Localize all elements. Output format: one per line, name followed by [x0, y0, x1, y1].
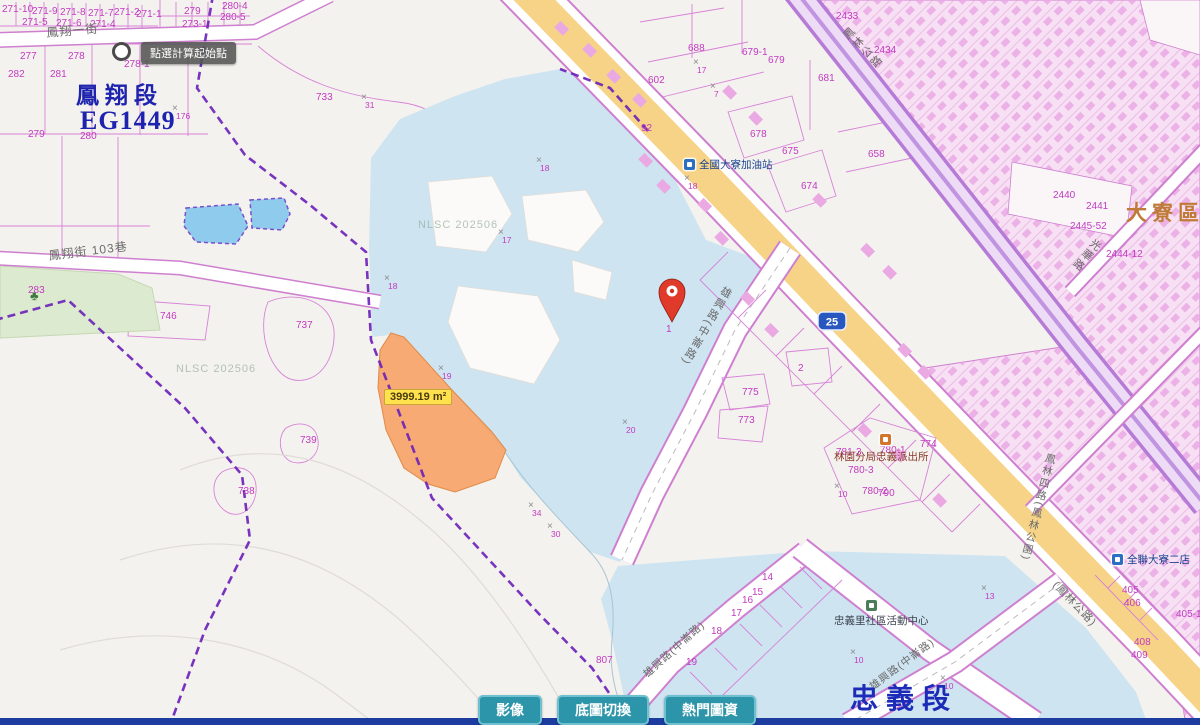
- popular-layers-button[interactable]: 熱門圖資: [664, 695, 756, 725]
- measure-tooltip: 點選計算起始點: [141, 42, 236, 64]
- cadastral-map-canvas[interactable]: ♣: [0, 0, 1200, 725]
- route-25-shield: 25: [818, 312, 846, 330]
- park-tree-icon: ♣: [30, 288, 39, 303]
- imagery-button[interactable]: 影像: [478, 695, 542, 725]
- parcel-area-label: 3999.19 m²: [384, 389, 452, 405]
- basemap-toggle-button[interactable]: 底圖切換: [557, 695, 649, 725]
- map-toolbar: 影像底圖切換熱門圖資: [478, 695, 756, 725]
- svg-text:25: 25: [826, 317, 838, 329]
- map-viewer: ♣: [0, 0, 1200, 725]
- measure-start-marker[interactable]: [112, 42, 131, 61]
